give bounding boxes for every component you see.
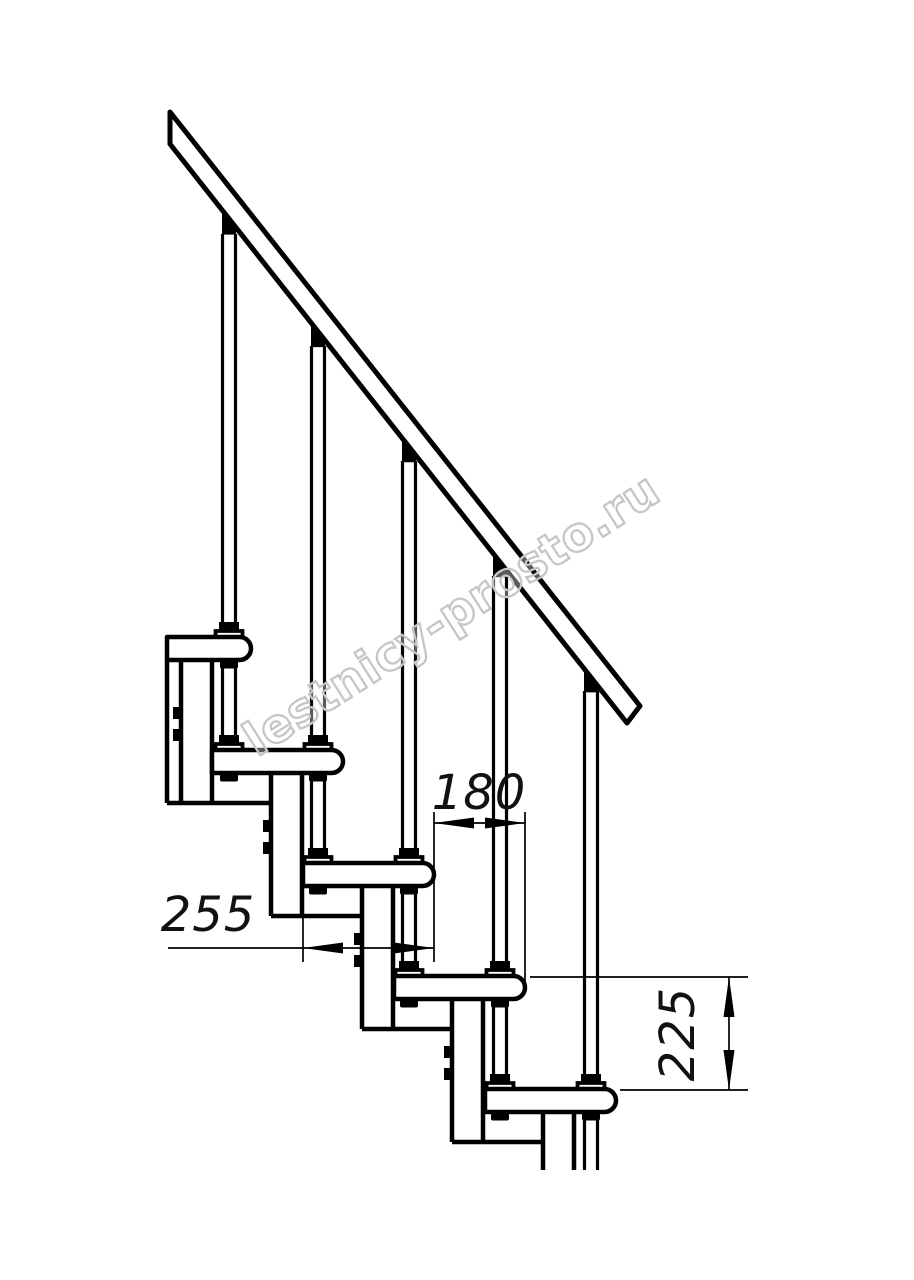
column-bolt [444, 1068, 453, 1080]
under-tread-nut [220, 774, 238, 782]
under-tread-nut [400, 1000, 418, 1008]
tread-3 [303, 863, 434, 886]
column-bolt [263, 820, 272, 832]
under-tread-nut [309, 774, 327, 782]
column-bolt [354, 955, 363, 967]
column-bolt [444, 1046, 453, 1058]
tread-5 [485, 1089, 616, 1112]
under-tread-nut [220, 661, 238, 669]
column-bolt [173, 707, 182, 719]
drawing-canvas: 180 255 225 lestnicy-prosto.ru [0, 0, 914, 1280]
under-tread-nut [309, 887, 327, 895]
tread-4 [394, 976, 525, 999]
rod-ferrule [308, 848, 328, 858]
column-bolt [173, 729, 182, 741]
column-bolt [263, 842, 272, 854]
rod-ferrule [219, 735, 239, 745]
staircase-drawing: 180 255 225 lestnicy-prosto.ru [0, 0, 914, 1280]
under-tread-nut [400, 887, 418, 895]
tread-1 [167, 637, 251, 660]
dimension-label-180: 180 [432, 765, 527, 821]
under-tread-nut [491, 1000, 509, 1008]
under-tread-nut [491, 1113, 509, 1121]
under-tread-nut [582, 1113, 600, 1121]
rod-ferrule [490, 1074, 510, 1084]
rod-ferrule [399, 961, 419, 971]
dimension-label-225: 225 [650, 987, 706, 1082]
dimension-label-255: 255 [161, 887, 256, 943]
column-bolt [354, 933, 363, 945]
